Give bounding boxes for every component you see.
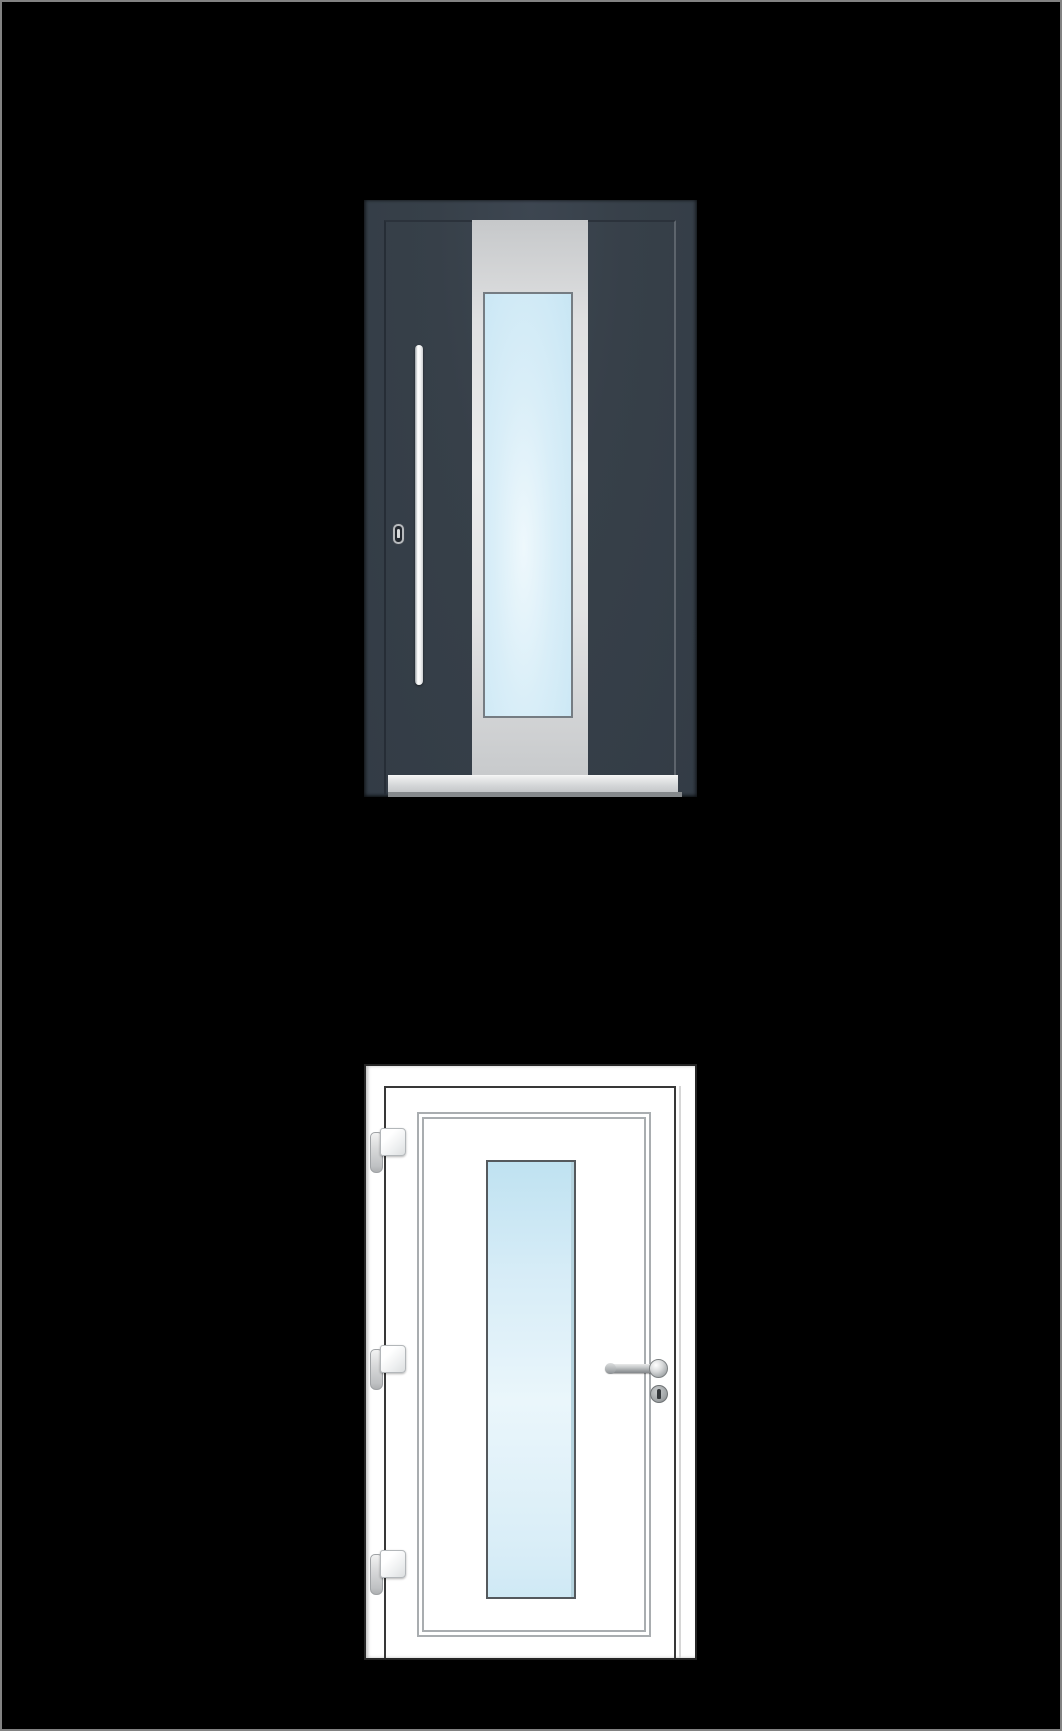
threshold-sill <box>388 775 678 793</box>
white-door-image[interactable] <box>364 1064 697 1660</box>
anthracite-door-image[interactable] <box>364 200 697 797</box>
lock-cylinder <box>650 1385 668 1403</box>
bar-pull-handle <box>415 345 423 685</box>
keyhole-pin <box>397 529 400 538</box>
keyway-slot <box>657 1389 661 1399</box>
catalogue-page <box>0 0 1062 1731</box>
handle-rose <box>649 1359 668 1378</box>
keyhole <box>393 524 404 544</box>
hinge-flag <box>380 1550 406 1578</box>
hinge-top <box>370 1128 406 1174</box>
hinge-flag <box>380 1345 406 1373</box>
hinge-middle <box>370 1345 406 1391</box>
door-handle-lever-tip <box>605 1363 616 1374</box>
glass-pane <box>486 1160 576 1599</box>
hinge-flag <box>380 1128 406 1156</box>
frame-highlight-line <box>679 1086 681 1658</box>
hinge-bottom <box>370 1550 406 1596</box>
threshold-sill-base <box>388 792 682 797</box>
glass-pane <box>483 292 573 718</box>
